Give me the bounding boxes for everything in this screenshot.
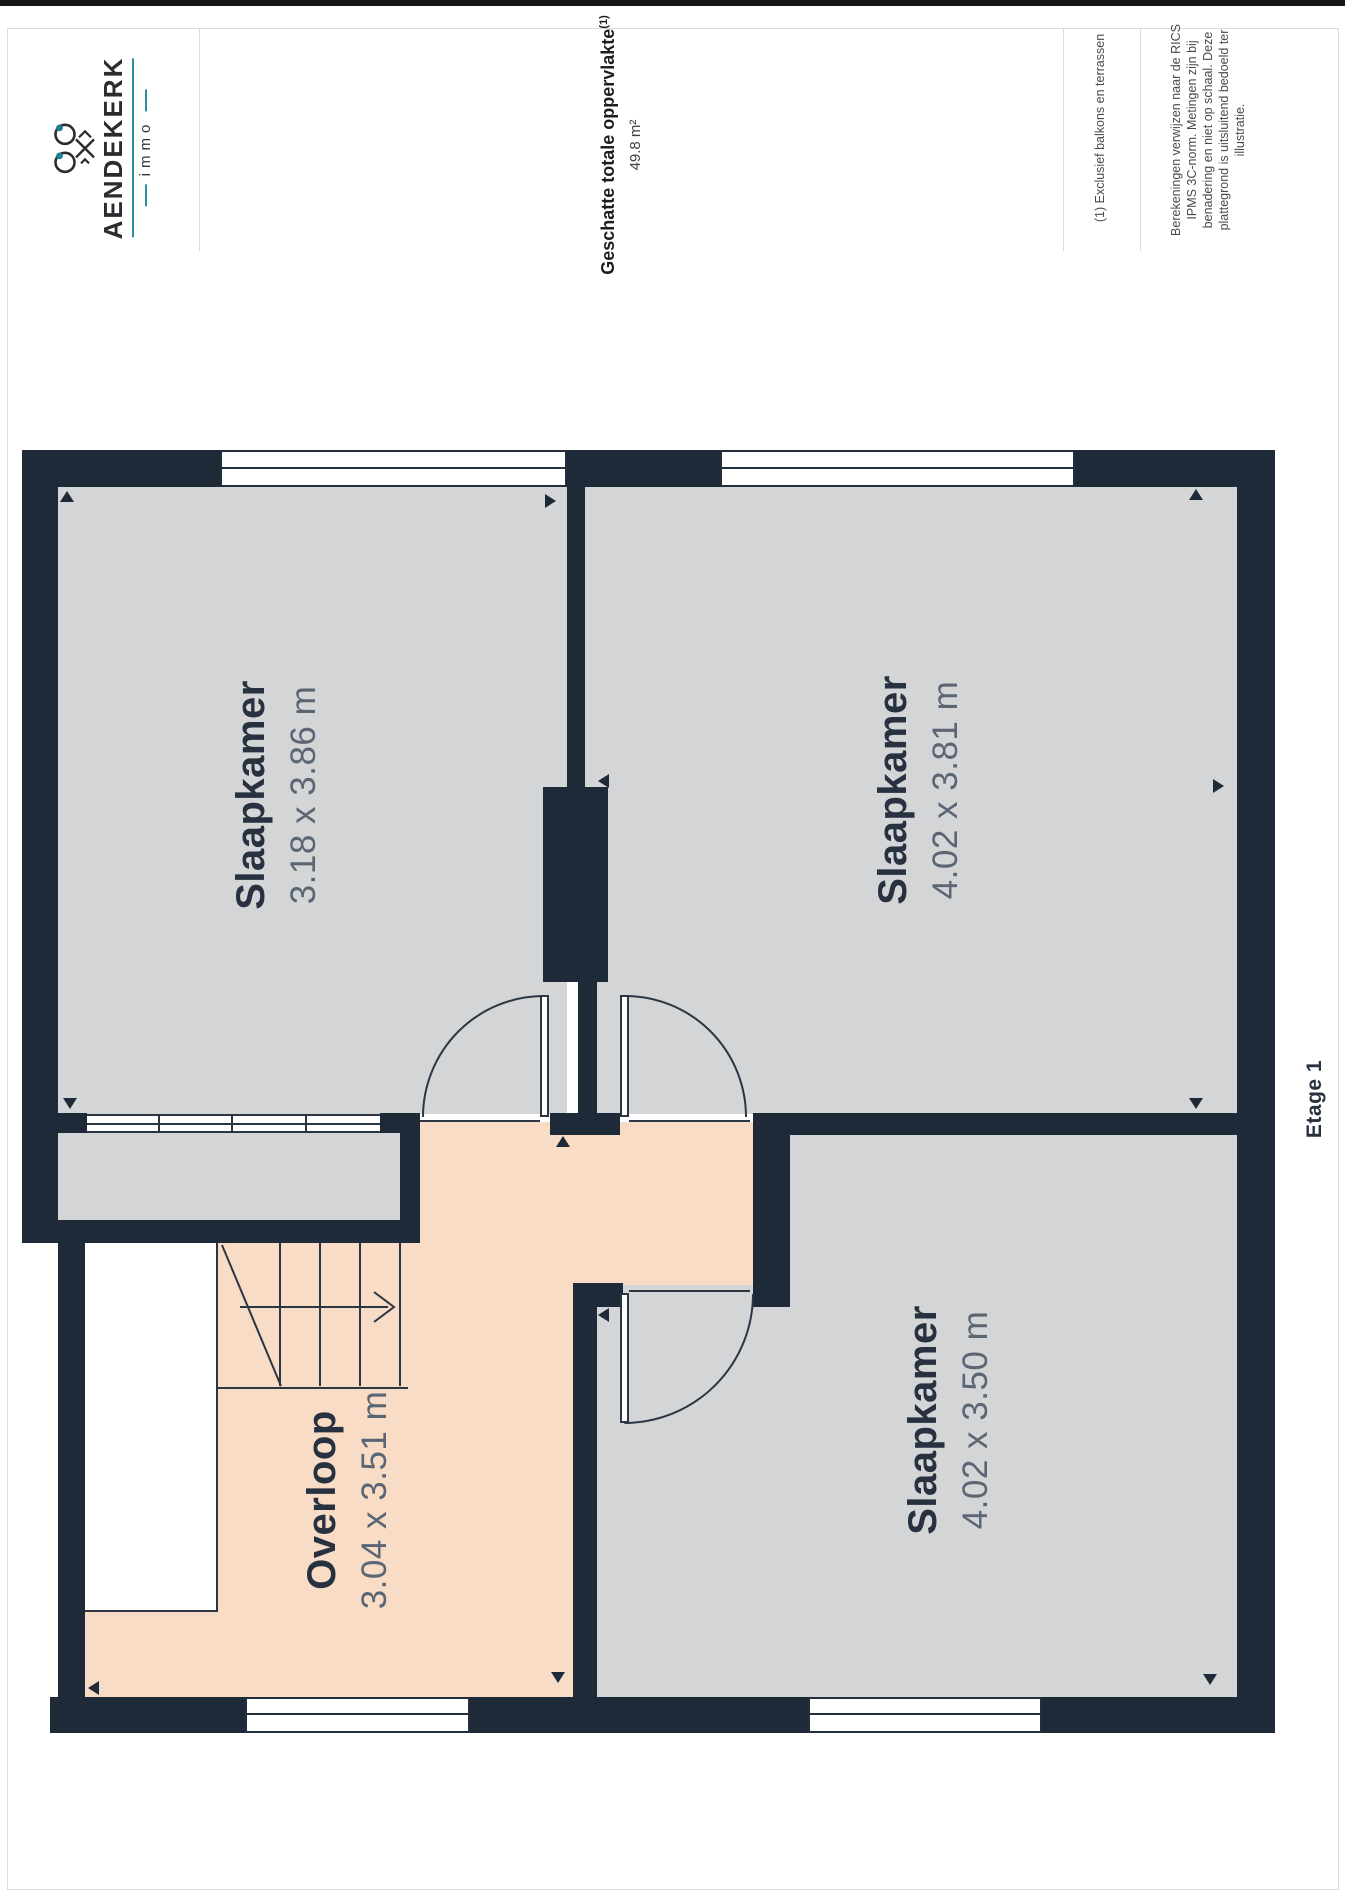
room-label-slaapkamer-2: Slaapkamer 4.02 x 3.81 m bbox=[867, 675, 973, 905]
room-name: Overloop bbox=[296, 1391, 348, 1610]
room-dims: 4.02 x 3.81 m bbox=[919, 675, 973, 905]
room-name: Slaapkamer bbox=[225, 680, 277, 910]
dimension-arrow bbox=[1203, 1674, 1217, 1685]
door-swing-arc bbox=[625, 1294, 754, 1423]
dimension-arrow bbox=[556, 1136, 570, 1147]
floorplan-page: { "brand": { "name": "AENDEKERK", "sub":… bbox=[0, 0, 1345, 1900]
floorplan: Slaapkamer 3.18 x 3.86 m Slaapkamer 4.02… bbox=[0, 0, 1345, 1900]
door-swing-arc bbox=[423, 996, 545, 1117]
dimension-arrow bbox=[598, 774, 609, 788]
dimension-arrow bbox=[1189, 1098, 1203, 1109]
room-label-slaapkamer-3: Slaapkamer 4.02 x 3.50 m bbox=[897, 1305, 1003, 1535]
dimension-arrow bbox=[598, 1308, 609, 1322]
dimension-arrow bbox=[551, 1672, 565, 1683]
room-dims: 3.18 x 3.86 m bbox=[277, 680, 331, 910]
dimension-arrow bbox=[63, 1098, 77, 1109]
floor-label: Etage 1 bbox=[1303, 1060, 1327, 1138]
dimension-arrow bbox=[545, 494, 556, 508]
room-label-overloop: Overloop 3.04 x 3.51 m bbox=[296, 1391, 402, 1610]
door-swing-arc bbox=[625, 996, 747, 1117]
dimension-arrow bbox=[60, 491, 74, 502]
stair-winder-line bbox=[222, 1245, 281, 1386]
dimension-arrow bbox=[1213, 779, 1224, 793]
room-label-slaapkamer-1: Slaapkamer 3.18 x 3.86 m bbox=[225, 680, 331, 910]
dimension-arrow bbox=[1189, 489, 1203, 500]
room-dims: 3.04 x 3.51 m bbox=[348, 1391, 402, 1610]
room-dims: 4.02 x 3.50 m bbox=[949, 1305, 1003, 1535]
plan-linework bbox=[0, 0, 1345, 1900]
room-name: Slaapkamer bbox=[897, 1305, 949, 1535]
dimension-arrow bbox=[88, 1681, 99, 1695]
room-name: Slaapkamer bbox=[867, 675, 919, 905]
